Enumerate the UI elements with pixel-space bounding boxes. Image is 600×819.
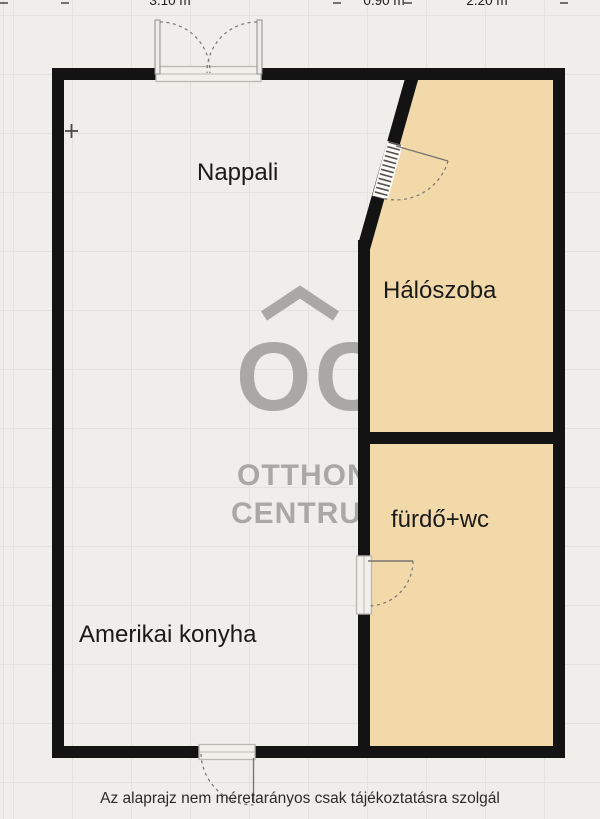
dimension-label: 3.10 m bbox=[149, 0, 190, 8]
plus-reference-mark bbox=[65, 124, 78, 138]
door-leaf-left bbox=[155, 20, 160, 74]
wall-bottom bbox=[52, 746, 565, 758]
room-label-furdo-wc: fürdő+wc bbox=[391, 506, 489, 534]
wall-right bbox=[553, 68, 565, 758]
door-swing-arc-right bbox=[207, 22, 257, 73]
dimension-label: 2.20 m bbox=[466, 0, 507, 8]
room-label-haloszoba: Hálószoba bbox=[383, 277, 496, 305]
entrance-double-door bbox=[155, 20, 262, 82]
wall-left bbox=[52, 68, 64, 758]
wall-divider-horizontal bbox=[358, 432, 558, 444]
room-label-amerikai-konyha: Amerikai konyha bbox=[79, 621, 256, 649]
disclaimer-caption: Az alaprajz nem méretarányos csak tájéko… bbox=[0, 790, 600, 808]
floor-plan-drawing bbox=[0, 0, 600, 819]
room-label-nappali: Nappali bbox=[197, 159, 278, 187]
floor-plan-page: { "plan": { "rooms": [ {"id": "nappali",… bbox=[0, 0, 600, 819]
door-leaf-right bbox=[257, 20, 262, 74]
wall-divider-vertical bbox=[358, 240, 370, 758]
wall-top bbox=[52, 68, 565, 80]
door-swing-arc-left bbox=[160, 22, 210, 73]
dimension-label: 0.90 m bbox=[363, 0, 404, 8]
